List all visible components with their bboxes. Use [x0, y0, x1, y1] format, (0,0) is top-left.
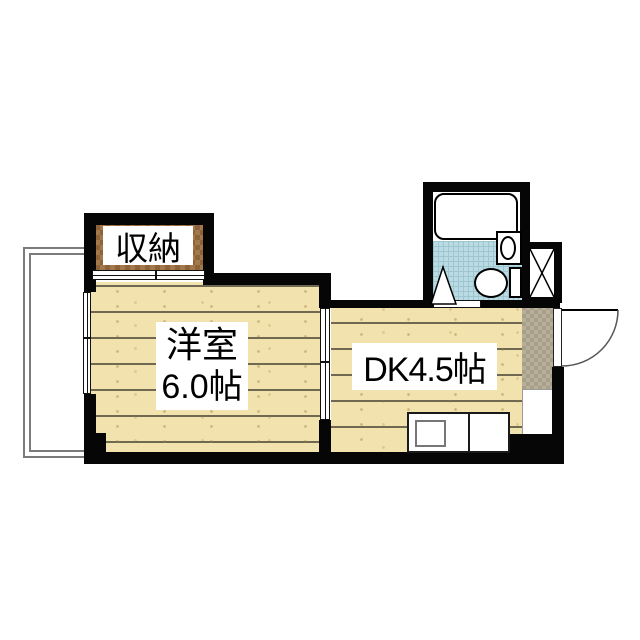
wall-divider-bottom [319, 420, 331, 452]
closet-label-text: 収納 [115, 222, 181, 270]
closet-label: 収納 [103, 226, 193, 265]
western-room-label: 洋室 6.0帖 [156, 322, 248, 410]
room-divider-sliding-door [320, 308, 330, 420]
counter-divider [468, 414, 470, 451]
entry-door-swing-icon [556, 306, 628, 372]
toilet-bowl [474, 268, 508, 298]
dk-label-text: DK4.5帖 [363, 342, 486, 391]
wall-closet-right [203, 213, 214, 273]
washbasin [496, 231, 522, 265]
pipe-space-x-icon [530, 249, 554, 297]
wall-western-room-top [203, 273, 331, 285]
wall-bath-top [423, 182, 530, 192]
dk-label: DK4.5帖 [352, 343, 497, 390]
closet-sliding-door [92, 270, 205, 280]
washbasin-bowl-icon [500, 236, 516, 260]
balcony-inner-rail [29, 253, 86, 452]
floorplan-canvas: 収納 洋室 6.0帖 DK4.5帖 [0, 0, 640, 640]
wall-left-corner [84, 433, 106, 453]
toilet-tank [509, 267, 522, 298]
kitchen-counter [407, 412, 510, 453]
wall-bottom [84, 452, 564, 464]
western-room-name: 洋室 [166, 324, 238, 366]
genkan-floor [522, 306, 554, 389]
genkan-lower-step [522, 389, 554, 435]
kitchen-sink-icon [415, 420, 446, 447]
bath-door-swing-triangle-icon [429, 264, 459, 306]
wall-left-upper [84, 213, 96, 292]
western-room-size: 6.0帖 [161, 366, 242, 408]
wall-right-lower [552, 367, 564, 452]
window-west [83, 292, 91, 394]
